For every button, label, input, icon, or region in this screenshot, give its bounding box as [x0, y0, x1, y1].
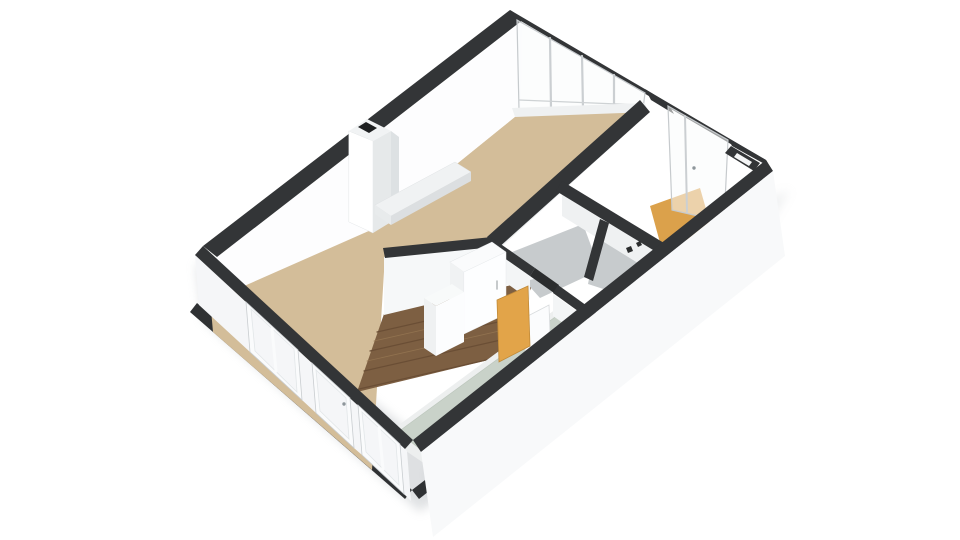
balcony-door-handle [692, 166, 695, 169]
ne-window-glass [517, 20, 645, 110]
floorplan-shapes [190, 10, 790, 537]
cabinet-left-face [424, 298, 436, 356]
chimney-left-face [349, 131, 373, 233]
sw-door-handle [342, 402, 345, 405]
ne-window-mullion-2 [582, 56, 583, 109]
ne-window-mullion-1 [550, 38, 551, 109]
floorplan-3d-render [0, 0, 960, 540]
floorplan-3d-view [0, 0, 960, 540]
